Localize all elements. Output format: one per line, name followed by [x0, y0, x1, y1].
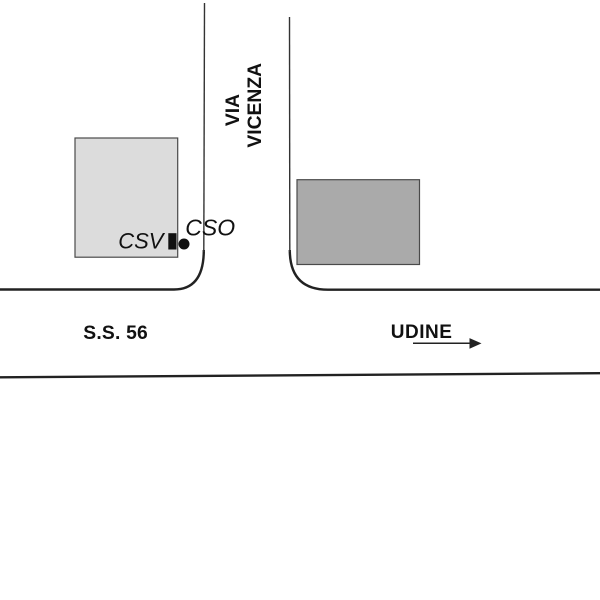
svg-text:UDINE: UDINE: [391, 322, 453, 343]
svg-text:S.S. 56: S.S. 56: [83, 323, 148, 344]
svg-text:CSV: CSV: [118, 228, 166, 253]
svg-text:VIA: VIA: [223, 94, 244, 126]
svg-text:VICENZA: VICENZA: [245, 63, 266, 148]
svg-text:CSO: CSO: [185, 215, 235, 241]
